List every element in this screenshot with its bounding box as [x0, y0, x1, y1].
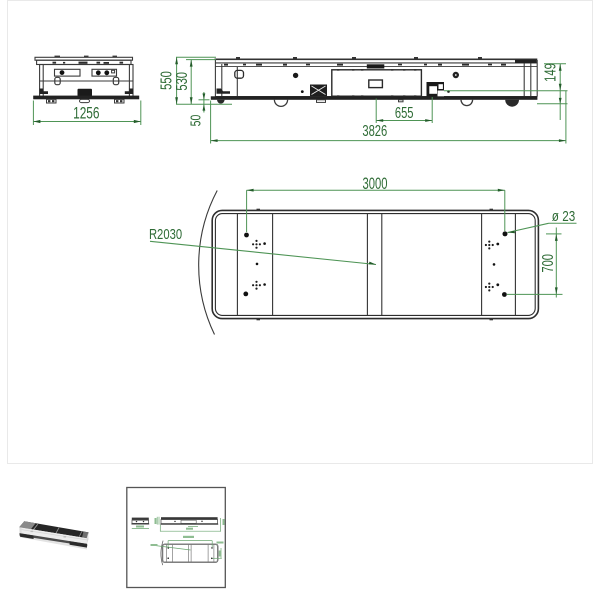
svg-text:ø 23: ø 23 — [552, 208, 575, 225]
svg-text:R2030: R2030 — [149, 225, 182, 242]
svg-text:50: 50 — [187, 115, 204, 127]
svg-text:149: 149 — [540, 63, 559, 82]
svg-text:530: 530 — [172, 72, 191, 91]
svg-text:700: 700 — [538, 254, 557, 273]
svg-text:3826: 3826 — [362, 121, 387, 140]
svg-text:1256: 1256 — [73, 105, 99, 124]
svg-text:655: 655 — [395, 103, 414, 122]
svg-text:3000: 3000 — [363, 175, 388, 194]
